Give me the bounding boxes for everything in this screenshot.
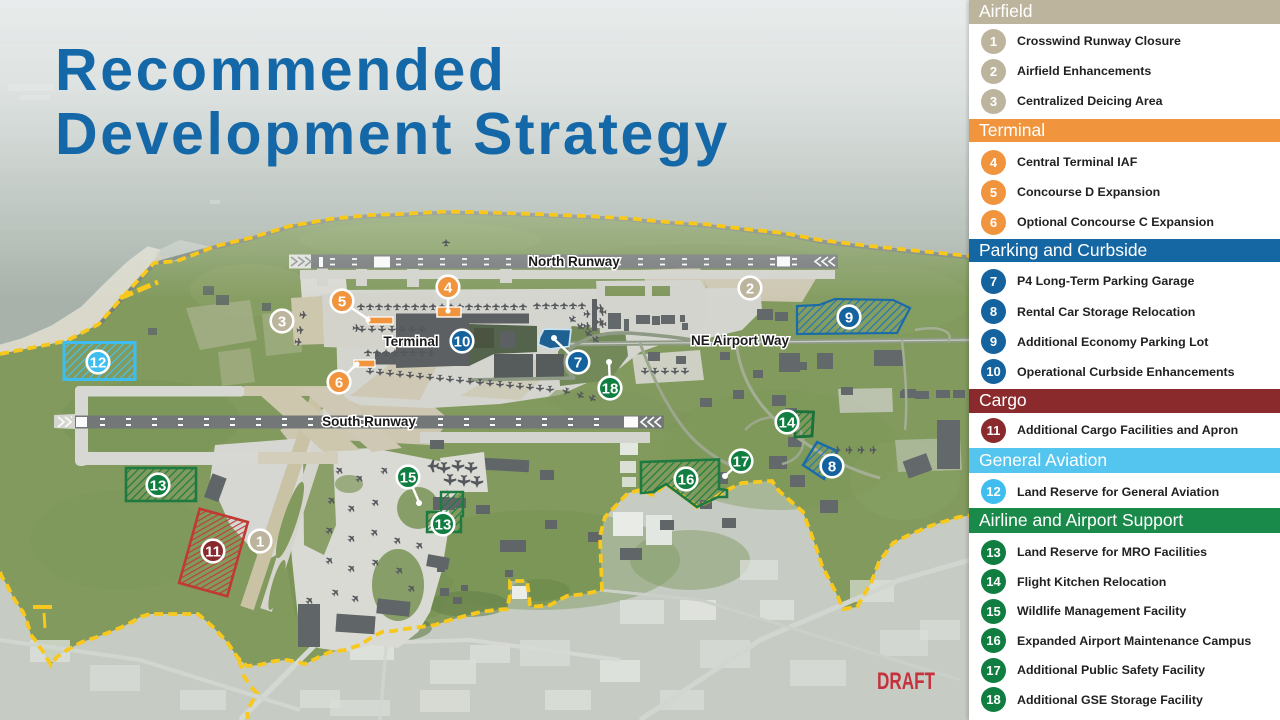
svg-text:3: 3 xyxy=(278,313,286,330)
svg-text:4: 4 xyxy=(444,279,453,296)
svg-text:18: 18 xyxy=(602,380,619,397)
svg-text:13: 13 xyxy=(435,516,452,533)
svg-text:13: 13 xyxy=(150,477,167,494)
svg-text:8: 8 xyxy=(828,458,836,475)
svg-text:6: 6 xyxy=(335,374,343,391)
svg-text:North Runway: North Runway xyxy=(528,254,620,269)
svg-text:DRAFT: DRAFT xyxy=(877,668,935,695)
svg-text:14: 14 xyxy=(779,414,796,431)
svg-text:15: 15 xyxy=(400,469,417,486)
svg-text:7: 7 xyxy=(574,354,582,371)
svg-text:11: 11 xyxy=(205,543,221,560)
svg-text:Terminal: Terminal xyxy=(383,334,438,349)
svg-text:1: 1 xyxy=(256,533,264,550)
svg-text:17: 17 xyxy=(733,453,750,470)
svg-text:9: 9 xyxy=(845,309,853,326)
svg-text:South Runway: South Runway xyxy=(322,414,416,429)
svg-text:NE Airport Way: NE Airport Way xyxy=(691,333,789,348)
svg-text:5: 5 xyxy=(338,293,346,310)
svg-text:2: 2 xyxy=(746,280,754,297)
svg-text:10: 10 xyxy=(454,333,471,350)
svg-text:12: 12 xyxy=(90,354,107,371)
svg-text:16: 16 xyxy=(678,471,695,488)
